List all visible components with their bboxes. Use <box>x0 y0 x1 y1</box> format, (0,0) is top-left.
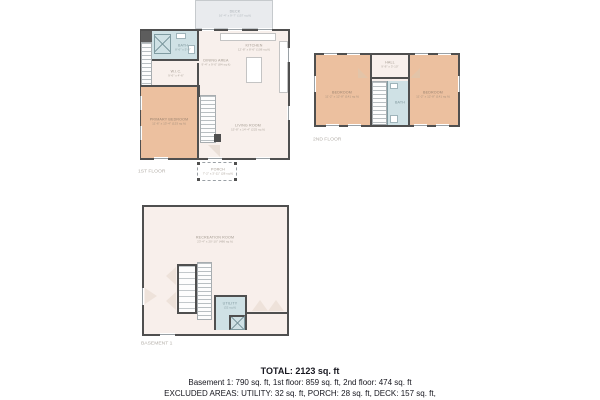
basement-stairs <box>197 262 212 320</box>
bathroom-2: BATH <box>387 81 408 125</box>
primary-bedroom-label: PRIMARY BEDROOM 11'-6" x 13'-4" (153 sq … <box>150 118 189 126</box>
window <box>438 52 451 55</box>
floorplan-canvas: DECK 16'-4" x 9'-7" (157 sq ft) BATH 8'-… <box>0 0 600 400</box>
deck-area: DECK 16'-4" x 9'-7" (157 sq ft) <box>195 0 273 29</box>
window <box>160 333 175 336</box>
bedroom-left-label: BEDROOM 11'-2" x 12'-8" (141 sq ft) <box>325 91 359 99</box>
kitchen-label: KITCHEN 12'-8" x 8'-6" (108 sq ft) <box>238 44 270 52</box>
deck-label: DECK 16'-4" x 9'-7" (157 sq ft) <box>219 10 251 18</box>
window <box>348 124 361 127</box>
toilet-icon <box>390 115 398 123</box>
bedroom-door-swing <box>358 68 368 78</box>
sink-icon <box>176 33 186 39</box>
utility-label: UTILITY (32 sq ft) <box>223 302 238 310</box>
bathroom-1: BATH 8'-6" x 5'-0" <box>152 31 199 61</box>
water-heater-icon <box>229 315 245 330</box>
window <box>414 124 427 127</box>
primary-bedroom: PRIMARY BEDROOM 11'-6" x 13'-4" (153 sq … <box>141 85 199 158</box>
window <box>436 124 449 127</box>
area-summary: TOTAL: 2123 sq. ft Basement 1: 790 sq. f… <box>0 366 600 400</box>
walk-in-closet: W.I.C. 9'-6" x 4'-6" <box>152 63 199 85</box>
kitchen-counter-top <box>220 33 276 41</box>
double-door-swing <box>252 300 268 311</box>
utility-room: UTILITY (32 sq ft) <box>214 295 247 330</box>
window <box>347 52 360 55</box>
summary-excluded: EXCLUDED AREAS: UTILITY: 32 sq. ft, PORC… <box>0 389 600 398</box>
basement-caption: BASEMENT 1 <box>141 340 172 346</box>
window <box>154 157 168 160</box>
hall-label: HALL 9'-8" x 3'-10" <box>381 61 398 69</box>
interior-wall <box>247 312 289 314</box>
window <box>326 124 339 127</box>
upper-stairs <box>372 81 387 125</box>
window <box>256 157 270 160</box>
stair-wall <box>198 85 200 97</box>
stair-post <box>214 134 221 142</box>
porch-post <box>197 162 200 165</box>
porch-post <box>234 178 237 181</box>
window <box>228 28 242 31</box>
porch-post <box>197 178 200 181</box>
window <box>313 76 316 92</box>
entry-closet <box>141 31 152 42</box>
window <box>324 52 337 55</box>
dining-label: DINING AREA 9'-4" x 9'-0" (84 sq ft) <box>202 59 231 67</box>
deck-door-opening <box>202 28 214 31</box>
sink-icon <box>390 83 398 89</box>
living-room-label: LIVING ROOM 15'-8" x 14'-4" (225 sq ft) <box>231 124 265 132</box>
first-floor-caption: 1ST FLOOR <box>138 168 165 174</box>
front-door-opening <box>208 157 222 160</box>
window <box>458 76 461 92</box>
first-floor-plan: DECK 16'-4" x 9'-7" (157 sq ft) BATH 8'-… <box>136 0 296 192</box>
window <box>287 48 290 62</box>
window <box>415 52 428 55</box>
porch-post <box>234 162 237 165</box>
second-floor-caption: 2ND FLOOR <box>313 136 341 142</box>
bathroom-2-label: BATH <box>395 101 405 105</box>
recreation-room-label: RECREATION ROOM 23'-4" x 20'-10" (486 sq… <box>196 236 234 244</box>
side-stairs <box>141 42 152 86</box>
window <box>139 126 142 140</box>
second-floor-plan: HALL 9'-8" x 3'-10" BATH BEDROOM 11'-2" … <box>312 46 464 150</box>
window <box>287 106 290 120</box>
summary-total: TOTAL: 2123 sq. ft <box>0 366 600 376</box>
summary-floors: Basement 1: 790 sq. ft, 1st floor: 859 s… <box>0 378 600 387</box>
basement-door-swing <box>145 288 157 304</box>
window <box>258 28 272 31</box>
porch-label: PORCH 7'-2" x 3'-11" (28 sq ft) <box>203 168 233 176</box>
storage-closet <box>177 264 197 314</box>
kitchen-island <box>246 57 262 83</box>
bedroom-door-swing <box>410 68 420 78</box>
window <box>139 96 142 110</box>
washer-dryer-icon <box>154 34 171 54</box>
core-lower: BATH <box>372 77 408 125</box>
basement-door-opening <box>141 288 144 305</box>
basement-plan: RECREATION ROOM 23'-4" x 20'-10" (486 sq… <box>136 196 296 352</box>
closet-door-swing <box>166 267 176 285</box>
wic-label: W.I.C. 9'-6" x 4'-6" <box>168 70 184 78</box>
hall-core: HALL 9'-8" x 3'-10" BATH <box>370 55 410 125</box>
front-door-swing <box>208 145 220 157</box>
double-door-swing <box>268 300 284 311</box>
bathroom-1-label: BATH 8'-6" x 5'-0" <box>175 44 191 52</box>
bedroom-right-label: BEDROOM 11'-2" x 12'-8" (141 sq ft) <box>416 91 450 99</box>
porch-area: PORCH 7'-2" x 3'-11" (28 sq ft) <box>197 162 237 181</box>
closet-door-swing <box>166 292 176 310</box>
